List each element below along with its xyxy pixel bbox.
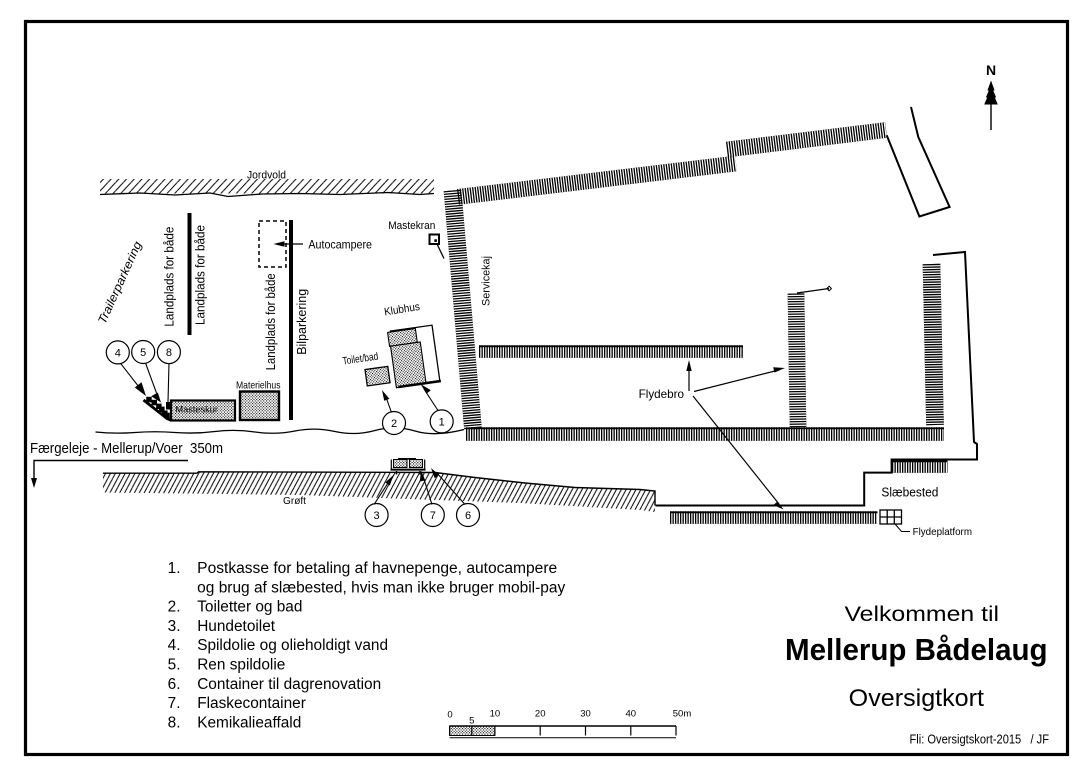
svg-text:Klubhus: Klubhus <box>383 301 421 319</box>
svg-text:Bilparkering: Bilparkering <box>295 289 309 355</box>
svg-text:Toiletter og bad: Toiletter og bad <box>197 599 302 616</box>
svg-text:Færgeleje - Mellerup/Voer 350: Færgeleje - Mellerup/Voer 350m <box>30 440 223 457</box>
svg-text:7: 7 <box>430 510 436 522</box>
svg-text:Mellerup Bådelaug: Mellerup Bådelaug <box>785 632 1048 667</box>
svg-text:Slæbested: Slæbested <box>881 486 938 500</box>
svg-text:Servicekaj: Servicekaj <box>481 256 493 306</box>
svg-text:Fli: Oversigtskort-2015 / JF: Fli: Oversigtskort-2015 / JF <box>910 733 1050 747</box>
svg-text:Landplads for både: Landplads for både <box>162 227 177 327</box>
svg-text:1.: 1. <box>168 560 181 577</box>
svg-text:Mastekran: Mastekran <box>388 220 435 232</box>
svg-text:3.: 3. <box>168 618 181 635</box>
svg-text:Hundetoilet: Hundetoilet <box>197 618 276 635</box>
svg-text:Grøft: Grøft <box>283 496 306 507</box>
svg-text:6.: 6. <box>168 676 181 693</box>
svg-text:7.: 7. <box>168 695 181 712</box>
svg-text:3: 3 <box>374 510 380 522</box>
svg-text:4: 4 <box>115 347 121 359</box>
svg-text:Toilet/bad: Toilet/bad <box>342 351 379 368</box>
svg-text:8.: 8. <box>168 714 181 731</box>
svg-text:1: 1 <box>439 416 445 428</box>
svg-text:Container til dagrenovation: Container til dagrenovation <box>197 676 381 693</box>
svg-text:10: 10 <box>490 709 501 720</box>
svg-text:Landplads for både: Landplads for både <box>263 273 278 370</box>
svg-text:Masteskur: Masteskur <box>175 405 218 416</box>
svg-text:2: 2 <box>391 418 397 430</box>
svg-text:Jordvold: Jordvold <box>247 170 286 182</box>
svg-text:Autocampere: Autocampere <box>308 238 372 252</box>
svg-text:Velkommen til: Velkommen til <box>845 603 1000 626</box>
svg-text:2.: 2. <box>168 599 181 616</box>
svg-text:Flydebro: Flydebro <box>639 387 685 401</box>
svg-text:20: 20 <box>535 709 546 720</box>
svg-text:30: 30 <box>580 709 591 720</box>
svg-text:Kemikalieaffald: Kemikalieaffald <box>197 714 301 731</box>
svg-text:Trailerparkering: Trailerparkering <box>95 239 145 326</box>
svg-text:5: 5 <box>469 716 474 727</box>
svg-text:Flaskecontainer: Flaskecontainer <box>197 695 306 712</box>
svg-text:Landplads for både: Landplads for både <box>193 225 208 325</box>
svg-text:Flydeplatform: Flydeplatform <box>913 526 973 538</box>
svg-text:5.: 5. <box>168 657 181 674</box>
svg-text:5: 5 <box>140 347 146 359</box>
svg-text:50m: 50m <box>673 709 692 720</box>
svg-text:Oversigtkort: Oversigtkort <box>849 685 985 712</box>
svg-text:40: 40 <box>626 709 637 720</box>
svg-text:0: 0 <box>447 710 452 721</box>
svg-text:Postkasse for betaling af havn: Postkasse for betaling af havnepenge, au… <box>197 560 557 577</box>
svg-text:Materielhus: Materielhus <box>236 380 281 392</box>
svg-text:8: 8 <box>166 347 172 359</box>
svg-text:6: 6 <box>465 510 471 522</box>
svg-text:Ren spildolie: Ren spildolie <box>197 657 285 674</box>
svg-text:og brug af slæbested, hvis man: og brug af slæbested, hvis man ikke brug… <box>197 579 565 596</box>
svg-text:4.: 4. <box>168 637 181 654</box>
svg-text:N: N <box>986 62 996 78</box>
svg-text:Spildolie og olieholdigt vand: Spildolie og olieholdigt vand <box>197 637 388 654</box>
